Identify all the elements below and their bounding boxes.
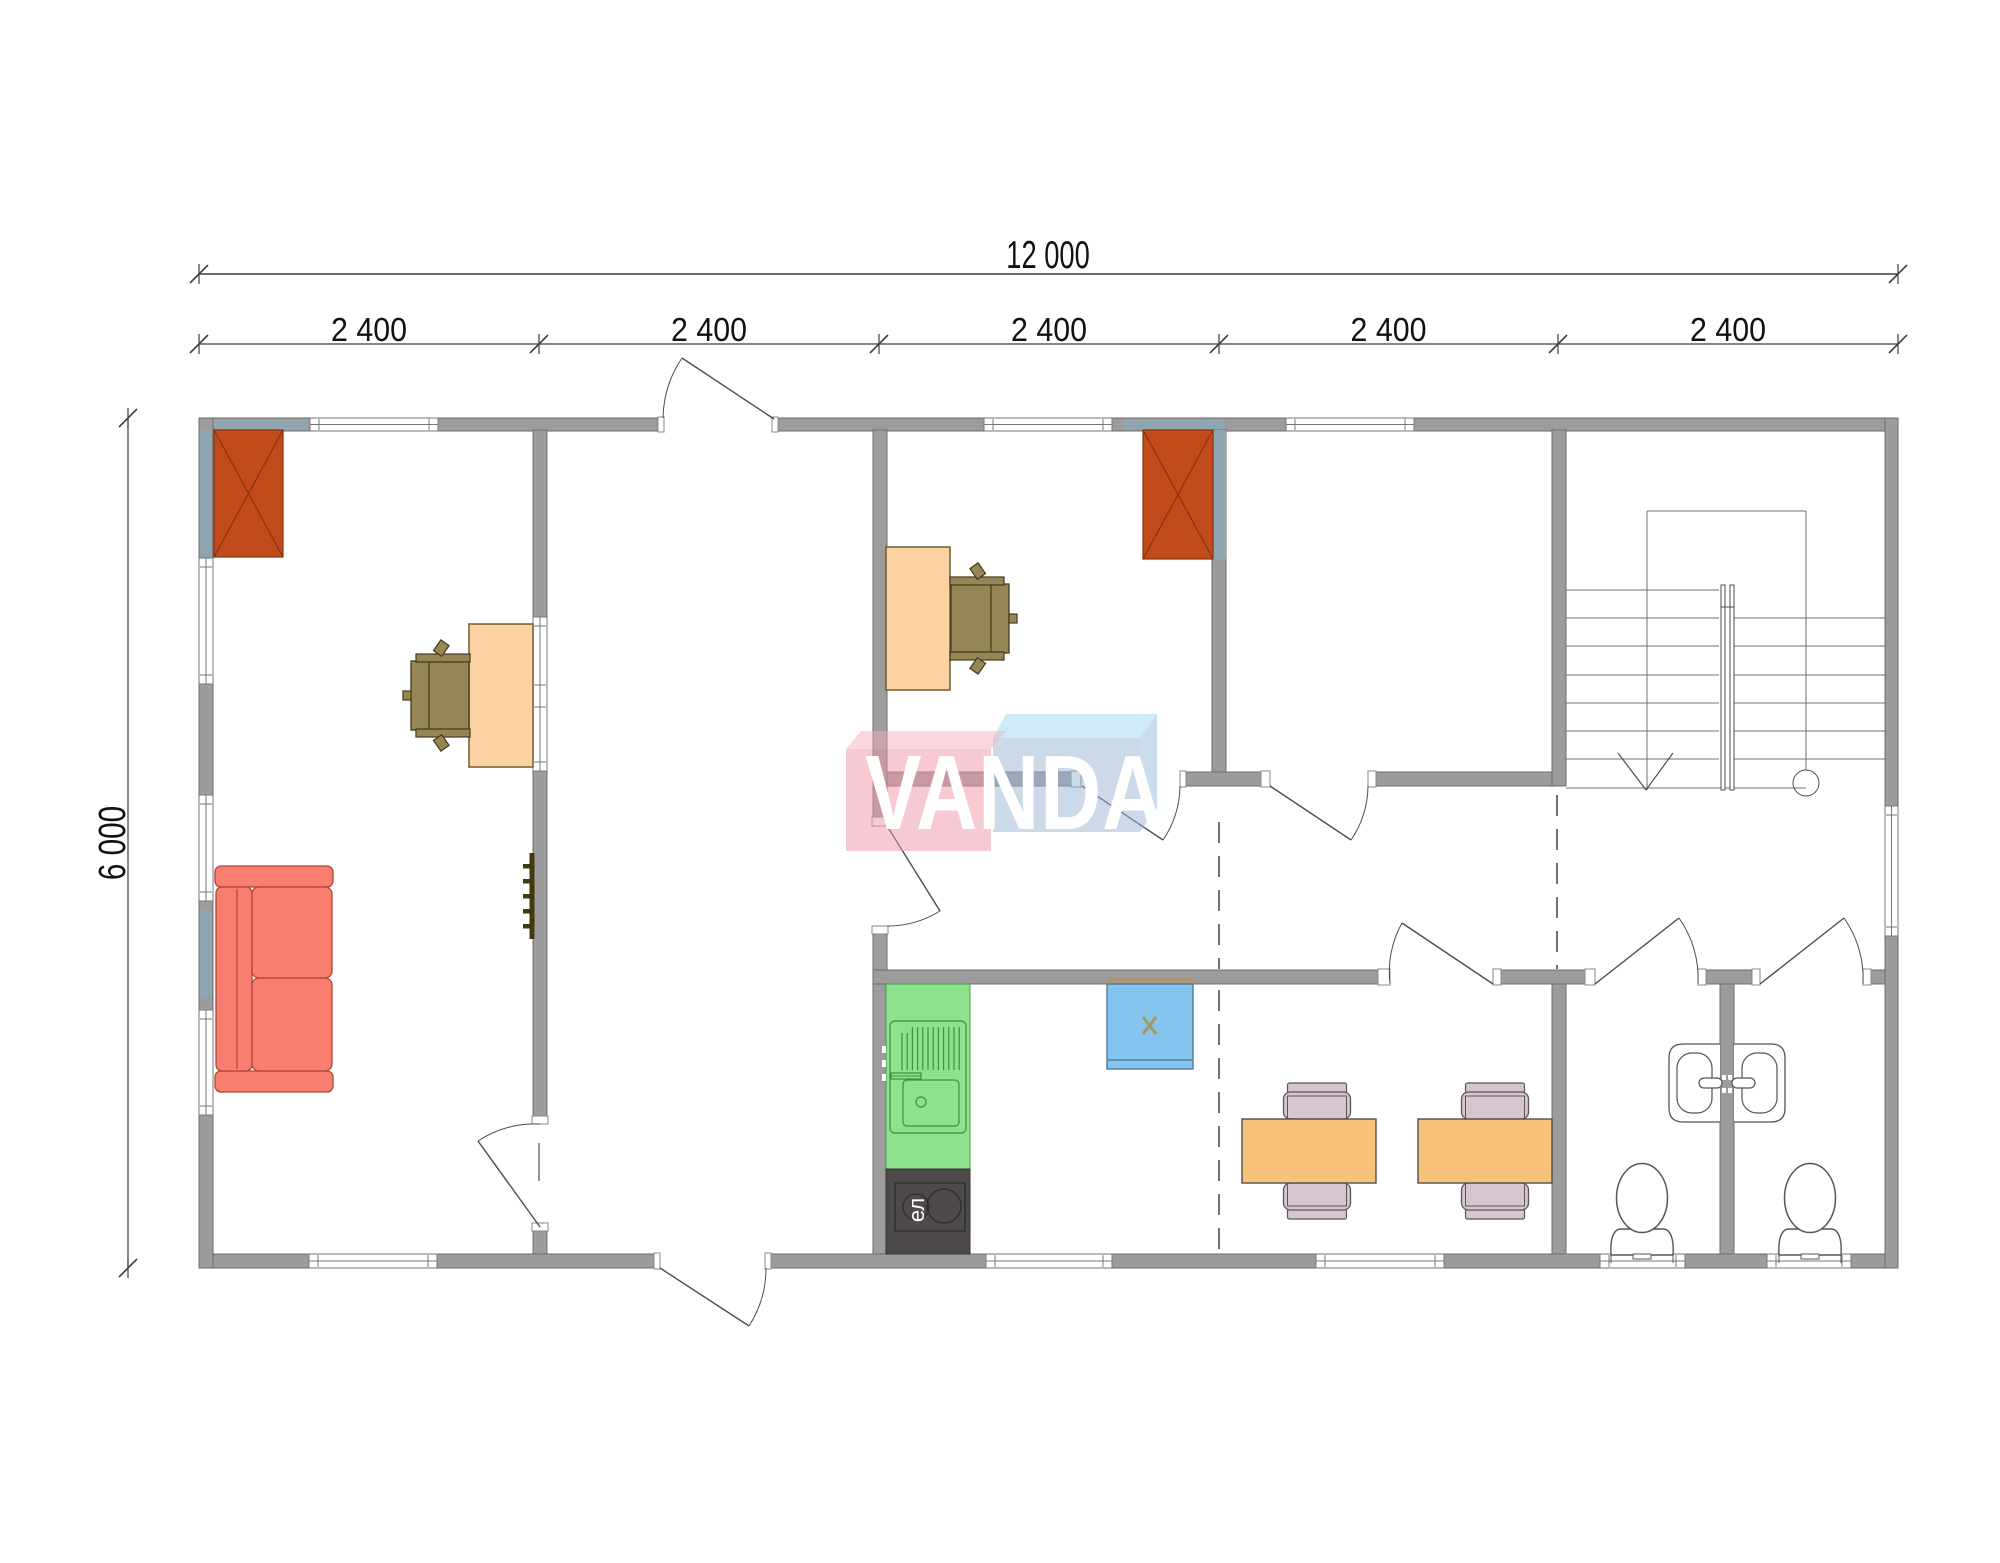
svg-text:2 400: 2 400 (671, 311, 747, 348)
svg-text:12 000: 12 000 (1006, 234, 1089, 277)
svg-text:VANDA: VANDA (865, 734, 1164, 852)
svg-text:2 400: 2 400 (1011, 311, 1087, 348)
svg-text:6 000: 6 000 (92, 806, 134, 880)
svg-text:2 400: 2 400 (1690, 311, 1766, 348)
svg-text:ел: ел (904, 1198, 929, 1222)
svg-text:2 400: 2 400 (1351, 311, 1427, 348)
svg-text:2 400: 2 400 (331, 311, 407, 348)
